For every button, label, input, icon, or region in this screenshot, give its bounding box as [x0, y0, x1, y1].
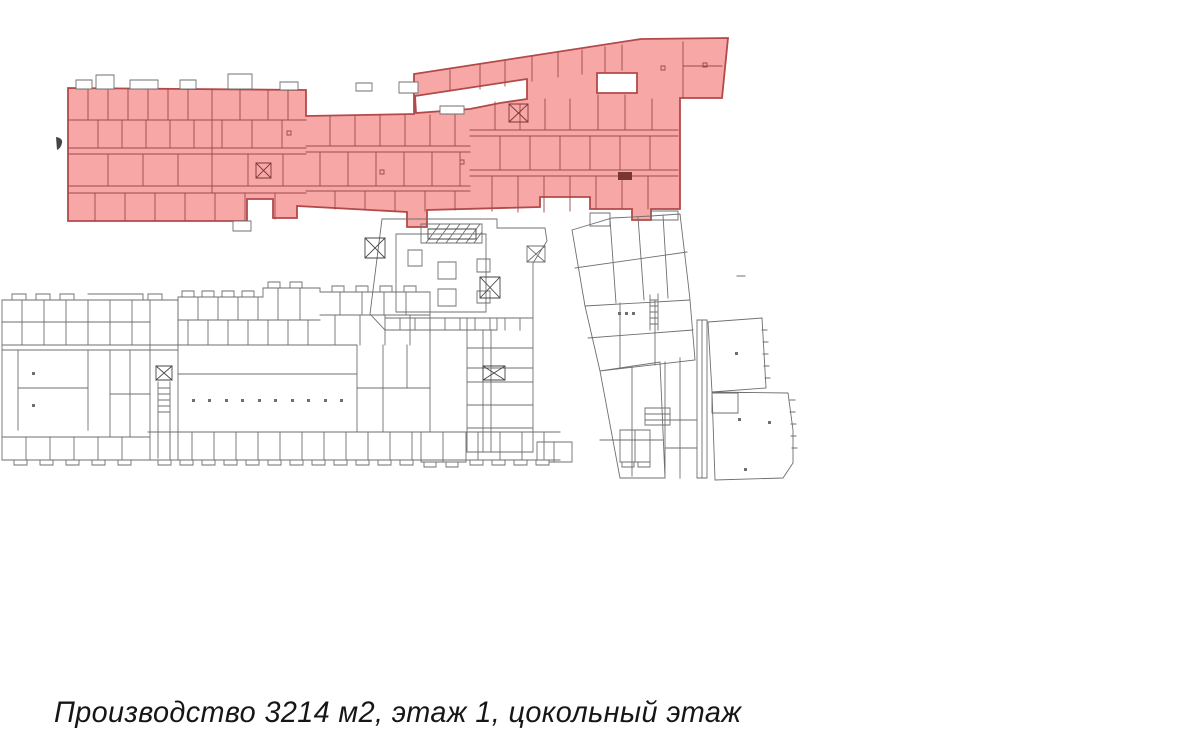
stairs-icon [158, 382, 170, 458]
elevator-shaft-icon [156, 366, 172, 380]
stair-stripe [618, 172, 632, 180]
north-mark [56, 137, 62, 150]
floor-plan-screen: Производство 3214 м2, этаж 1, цокольный … [0, 0, 1200, 745]
plan-caption: Производство 3214 м2, этаж 1, цокольный … [54, 696, 741, 730]
building-middle-wing [148, 282, 650, 467]
highlighted-production-area[interactable] [68, 38, 728, 231]
building-right-complex [572, 211, 797, 480]
building-courtyard-block [365, 219, 547, 330]
production-area-outline [68, 38, 728, 227]
floor-plan-canvas [0, 0, 1200, 745]
building-left-wing [2, 294, 178, 465]
column-row [192, 399, 343, 402]
